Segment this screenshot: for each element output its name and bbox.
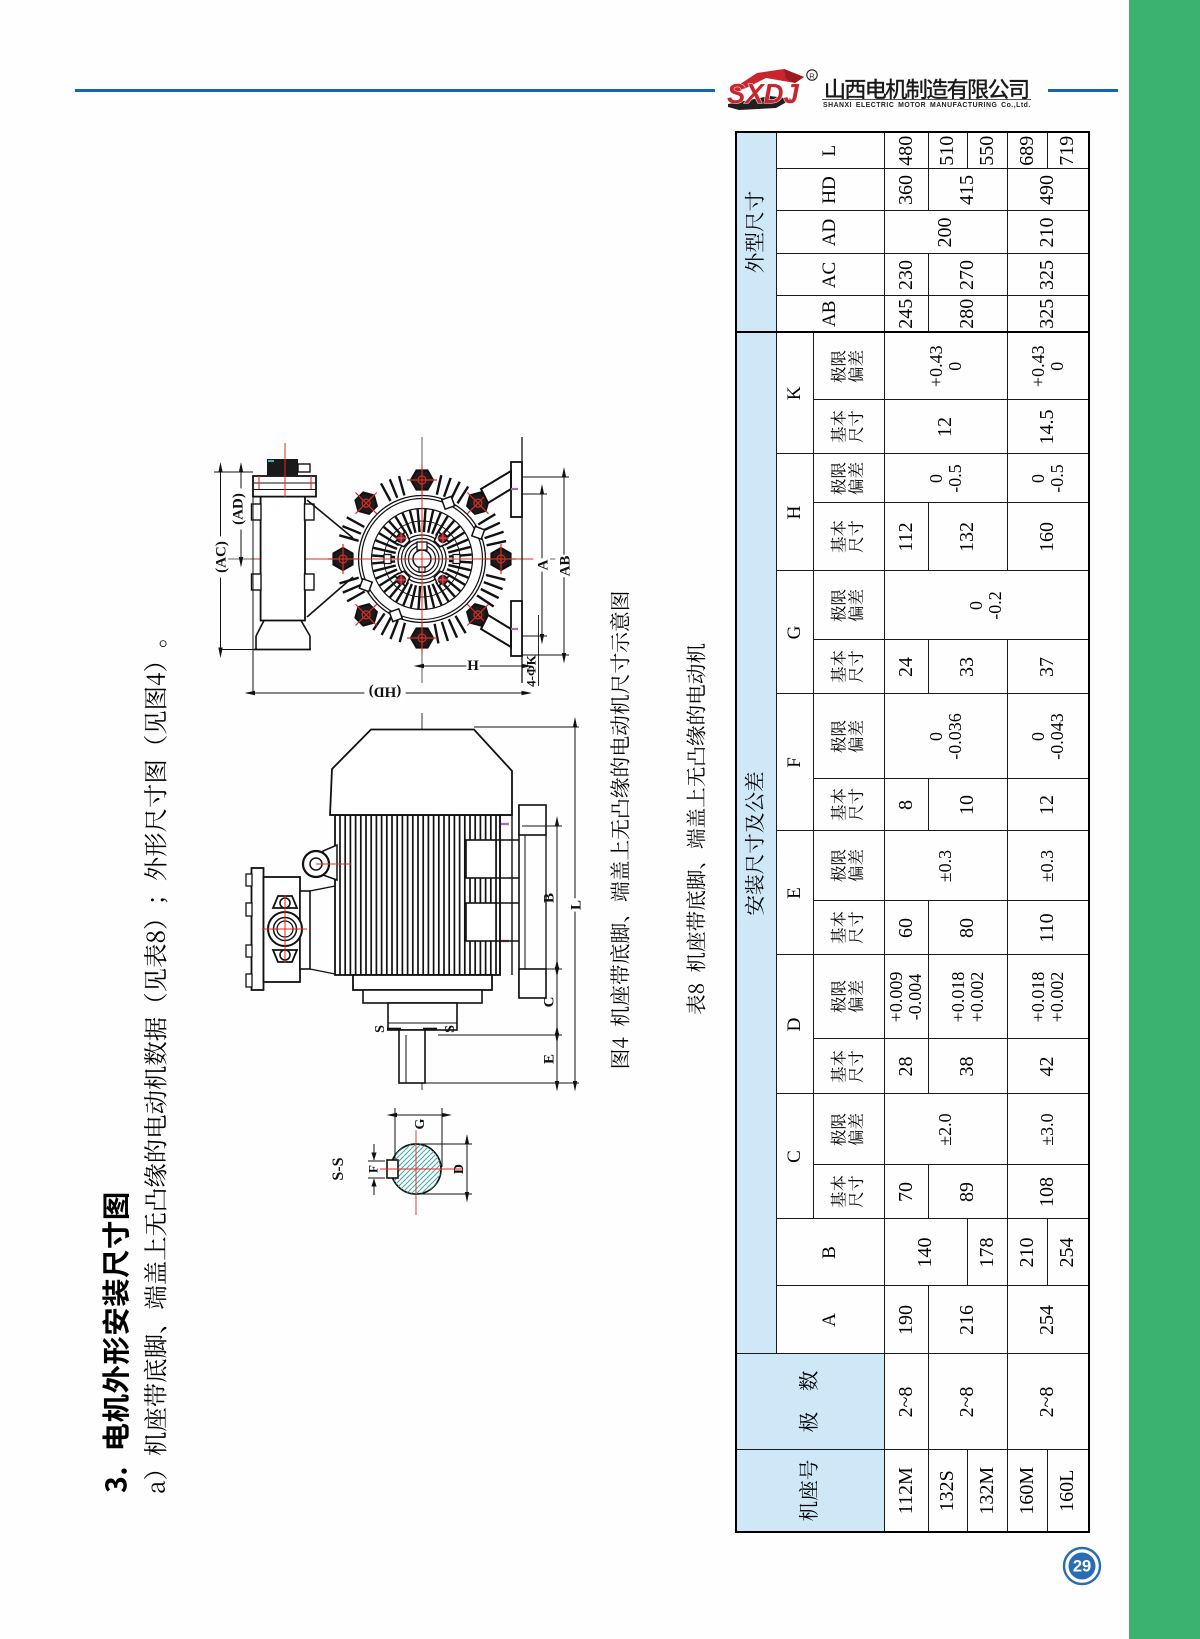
- svg-text:D: D: [452, 1164, 467, 1174]
- svg-text:AB: AB: [557, 556, 573, 577]
- svg-text:H: H: [467, 657, 479, 673]
- svg-text:(HD): (HD): [369, 684, 402, 700]
- svg-text:G: G: [413, 1118, 428, 1129]
- svg-text:4-ΦK: 4-ΦK: [524, 654, 539, 687]
- svg-text:C: C: [541, 997, 557, 1008]
- svg-text:R: R: [809, 72, 815, 81]
- svg-text:(AC): (AC): [213, 541, 229, 573]
- svg-text:B: B: [541, 893, 557, 903]
- svg-text:E: E: [541, 1054, 557, 1064]
- svg-text:L: L: [568, 900, 584, 910]
- svg-text:S-S: S-S: [330, 1157, 347, 1180]
- svg-text:A: A: [535, 559, 551, 570]
- svg-text:29: 29: [1073, 1558, 1091, 1576]
- svg-text:F: F: [366, 1165, 381, 1173]
- svg-text:S: S: [443, 1025, 458, 1033]
- svg-text:S: S: [373, 1025, 388, 1033]
- svg-text:SXDJ: SXDJ: [727, 78, 800, 109]
- svg-text:(AD): (AD): [230, 493, 246, 525]
